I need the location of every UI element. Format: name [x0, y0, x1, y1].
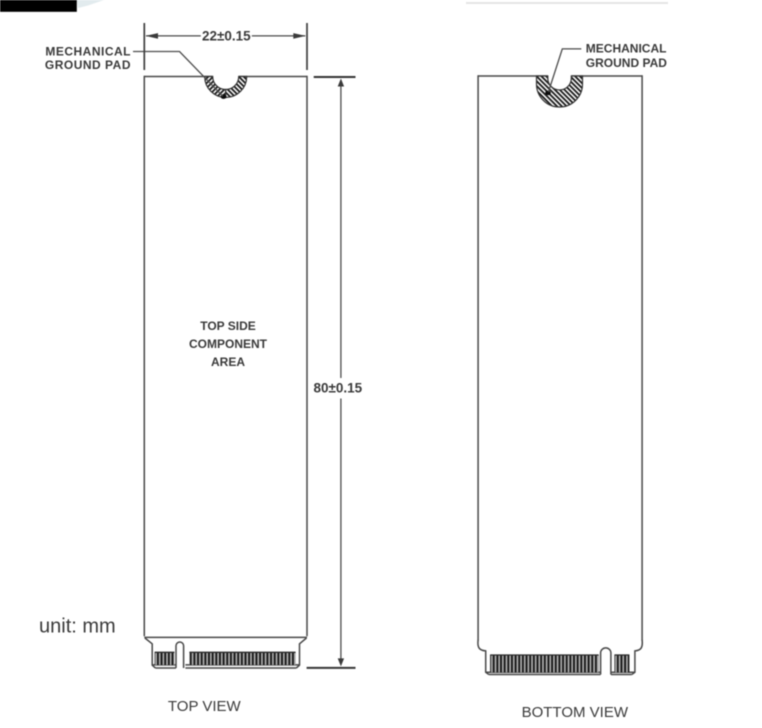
svg-text:TOP VIEW: TOP VIEW — [168, 698, 242, 715]
svg-text:MECHANICAL: MECHANICAL — [586, 42, 667, 56]
svg-text:GROUND PAD: GROUND PAD — [586, 56, 667, 70]
svg-text:BOTTOM VIEW: BOTTOM VIEW — [522, 704, 629, 721]
svg-text:MECHANICAL: MECHANICAL — [45, 45, 131, 59]
svg-text:GROUND PAD: GROUND PAD — [45, 58, 131, 72]
svg-text:80±0.15: 80±0.15 — [313, 381, 362, 396]
svg-text:unit: mm: unit: mm — [39, 616, 116, 638]
svg-text:TOP SIDE: TOP SIDE — [200, 319, 256, 333]
svg-text:COMPONENT: COMPONENT — [189, 337, 268, 351]
svg-text:AREA: AREA — [211, 355, 245, 369]
svg-text:22±0.15: 22±0.15 — [202, 29, 251, 44]
